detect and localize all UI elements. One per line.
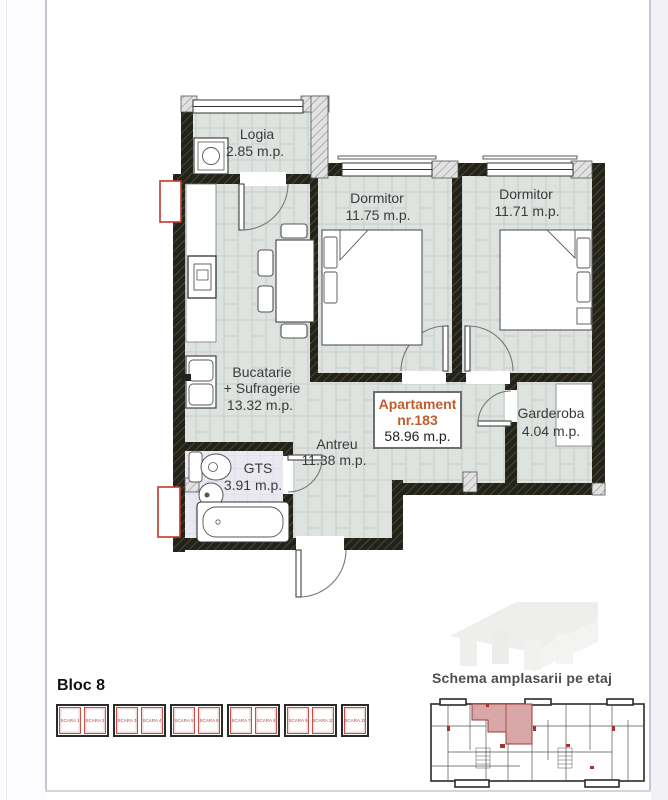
chair (281, 224, 307, 238)
bucatarie-label-line1: Bucatarie (232, 365, 291, 380)
scara-box: SCARA 9 (287, 707, 309, 734)
dormitor1-door-leaf (443, 326, 448, 371)
scara-box: SCARA 1 (59, 707, 81, 734)
dormitor2-label: Dormitor (499, 187, 553, 202)
entrance-door-leaf (296, 550, 301, 597)
chair (281, 324, 307, 338)
dormitor2-door-leaf (465, 326, 470, 371)
scara-box: SCARA 10 (312, 707, 334, 734)
bed (322, 230, 422, 345)
bloc-title: Bloc 8 (57, 677, 105, 695)
garderoba-label: Garderoba (518, 406, 585, 421)
stove-icon (188, 256, 216, 298)
garderoba-area: 4.04 m.p. (522, 424, 580, 439)
logia-label: Logia (240, 127, 274, 142)
apartment-area: 58.96 m.p. (384, 428, 450, 445)
mini-floor-plan (431, 699, 644, 787)
antreu-label: Antreu (316, 437, 357, 452)
radiator (158, 487, 180, 537)
scara-box: SCARA 6 (198, 707, 220, 734)
dormitor1-window-sill (338, 156, 436, 159)
antreu-area: 11.38 m.p. (301, 453, 366, 468)
logia-door-leaf (239, 184, 244, 230)
dormitor2-window-sill (483, 156, 577, 159)
scara-box: SCARA 8 (255, 707, 277, 734)
bucatarie-area: 13.32 m.p. (227, 398, 293, 413)
scara-box: SCARA 11 (344, 707, 366, 734)
scara-row: SCARA 1SCARA 2SCARA 3SCARA 4SCARA 5SCARA… (56, 704, 369, 737)
scara-group: SCARA 9SCARA 10 (284, 704, 337, 737)
scara-box: SCARA 4 (141, 707, 163, 734)
dormitor2-area: 11.71 m.p. (494, 204, 559, 219)
dormitor1-area: 11.75 m.p. (345, 208, 410, 223)
scara-group: SCARA 3SCARA 4 (113, 704, 166, 737)
schema-title: Schema amplasarii pe etaj (432, 670, 612, 686)
bed (500, 230, 592, 330)
watermark-logo (450, 602, 598, 672)
scara-box: SCARA 2 (84, 707, 106, 734)
apartment-name: Apartament (379, 396, 457, 412)
kitchen-sink-icon (182, 356, 216, 408)
floor-plan-page: Logia 2.85 m.p. Dormitor 11.75 m.p. Dorm… (0, 0, 668, 800)
scara-group: SCARA 11 (341, 704, 369, 737)
scara-box: SCARA 3 (116, 707, 138, 734)
apartment-info-box: Apartament nr.183 58.96 m.p. (373, 391, 462, 449)
washing-machine-icon (194, 138, 228, 174)
scara-box: SCARA 5 (173, 707, 195, 734)
radiator (160, 181, 181, 222)
dormitor1-label: Dormitor (350, 191, 404, 206)
gts-area: 3.91 m.p. (224, 478, 282, 493)
scara-group: SCARA 5SCARA 6 (170, 704, 223, 737)
entrance-door-arc (301, 550, 346, 597)
scara-group: SCARA 1SCARA 2 (56, 704, 109, 737)
chair (258, 250, 273, 276)
logia-area: 2.85 m.p. (226, 144, 284, 159)
scara-box: SCARA 7 (230, 707, 252, 734)
dining-table (276, 240, 314, 322)
bathtub-icon (197, 502, 289, 542)
garderoba-door-leaf (478, 421, 511, 426)
gts-label: GTS (244, 461, 273, 476)
apartment-number: nr.183 (397, 412, 437, 428)
scara-group: SCARA 7SCARA 8 (227, 704, 280, 737)
bucatarie-label-line2: + Sufragerie (224, 381, 301, 396)
chair (258, 286, 273, 312)
